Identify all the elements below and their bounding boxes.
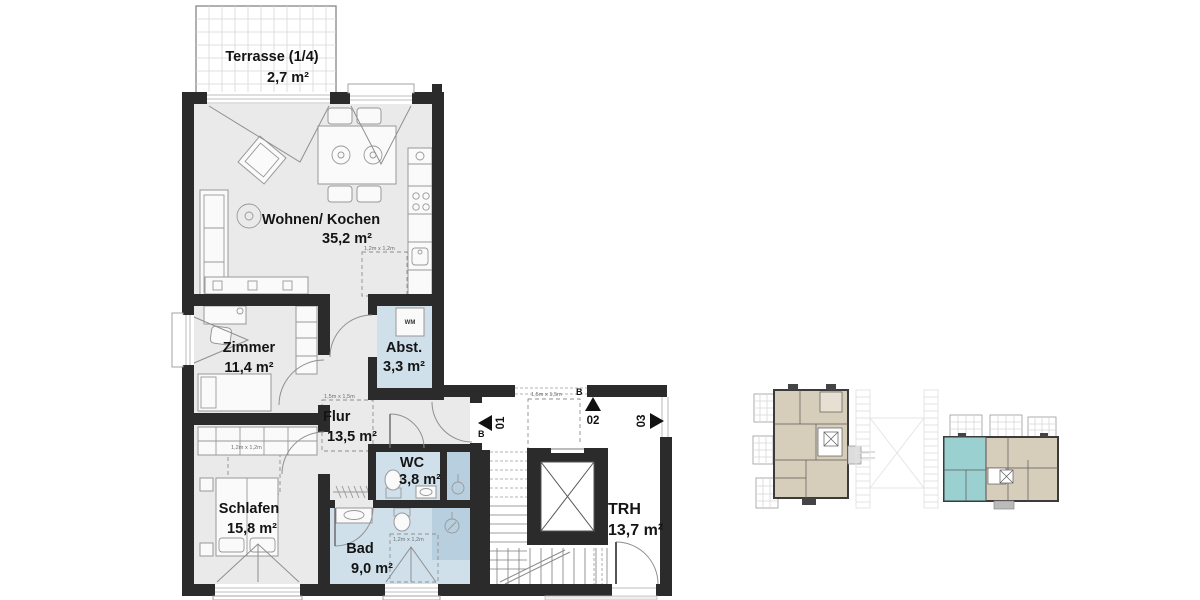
room-label-terrasse: Terrasse (1/4) [225, 49, 318, 65]
mini-plan-building-b [944, 415, 1058, 509]
dim-bad: 1,2m x 1,2m [393, 537, 424, 543]
unit-02-label: 02 [587, 415, 600, 427]
room-label-bad: Bad [346, 541, 373, 557]
room-label-wc: WC [400, 455, 425, 471]
room-area-zimmer: 11,4 m² [224, 360, 273, 376]
wc-shower-area [447, 452, 470, 500]
room-area-flur: 13,5 m² [327, 429, 377, 445]
section-b-left: B [478, 429, 485, 439]
room-area-trh: 13,7 m² [608, 522, 663, 539]
washing-machine-label: WM [405, 320, 416, 326]
unit-03-label: 03 [636, 415, 648, 428]
room-label-flur: Flur [323, 409, 351, 425]
corridor-opening-right [662, 397, 668, 437]
room-area-abstellraum: 3,3 m² [383, 359, 425, 375]
floorplan-drawing: 01 02 03 B B Terrasse (1/4) 2,7 m² Wohne… [0, 0, 1200, 600]
room-area-bad: 9,0 m² [351, 561, 393, 577]
room-area-wohnen: 35,2 m² [322, 231, 372, 247]
unit-01-label: 01 [495, 416, 507, 429]
section-b-top: B [576, 387, 583, 397]
room-label-zimmer: Zimmer [223, 340, 276, 356]
room-area-terrasse: 2,7 m² [267, 70, 309, 86]
dim-kitchen: 1,2m x 1,2m [364, 246, 395, 252]
room-area-schlafen: 15,8 m² [227, 521, 277, 537]
mini-b-highlighted-unit [944, 437, 986, 501]
dim-corridor: 1,5m x 1,5m [531, 392, 562, 398]
bed-zimmer [198, 374, 271, 411]
elevator [527, 444, 608, 545]
room-label-schlafen: Schlafen [219, 501, 279, 517]
washbasin-icon-bad [336, 508, 372, 523]
room-label-wohnen: Wohnen/ Kochen [262, 212, 380, 228]
room-label-abstellraum: Abst. [386, 340, 422, 356]
dim-schlafen: 1,2m x 1,2m [231, 445, 262, 451]
room-area-wc: 3,8 m² [399, 472, 441, 488]
floorplan-canvas: 01 02 03 B B Terrasse (1/4) 2,7 m² Wohne… [0, 0, 1200, 600]
mini-a-entry-canopy [848, 446, 875, 464]
mini-plan-faint-building [856, 390, 938, 508]
room-label-trh: TRH [608, 501, 641, 518]
dim-flur: 1,5m x 1,5m [324, 394, 355, 400]
sideboard [205, 277, 308, 294]
kitchen-counter [408, 148, 432, 296]
